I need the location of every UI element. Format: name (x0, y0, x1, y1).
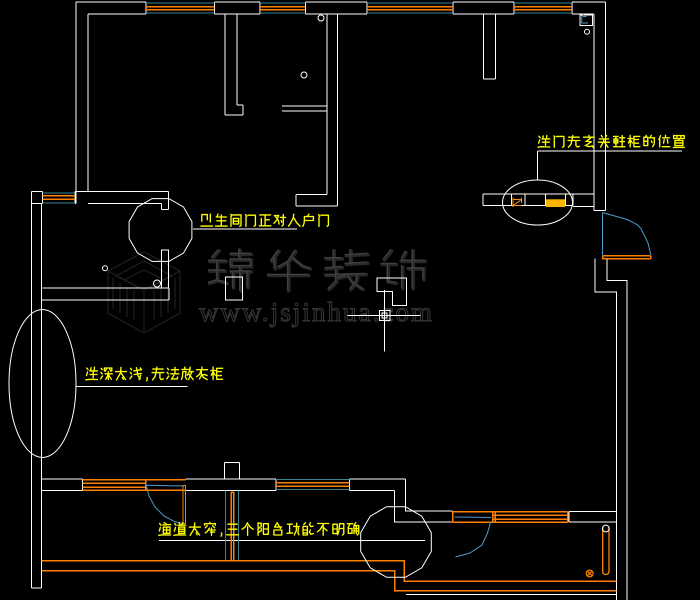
svg-text:www.jsjinhua.com: www.jsjinhua.com (199, 297, 432, 327)
